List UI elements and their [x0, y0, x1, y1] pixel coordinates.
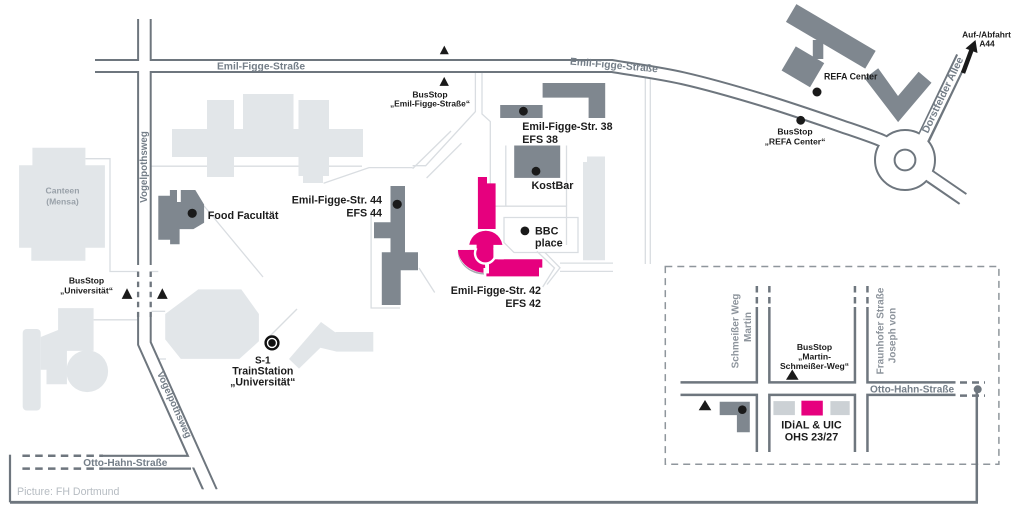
svg-text:Emil-Figge-Str. 44: Emil-Figge-Str. 44: [292, 195, 382, 207]
svg-text:„Universität“: „Universität“: [60, 286, 113, 296]
svg-text:REFA Center: REFA Center: [824, 72, 878, 82]
svg-text:Emil-Figge-Str. 38: Emil-Figge-Str. 38: [522, 121, 612, 133]
svg-text:A44: A44: [979, 39, 995, 49]
svg-text:BBC: BBC: [535, 226, 559, 238]
svg-text:EFS 42: EFS 42: [505, 298, 541, 310]
svg-text:BusStop: BusStop: [69, 276, 104, 286]
svg-text:BusStop: BusStop: [777, 127, 812, 137]
svg-text:Otto-Hahn-Straße: Otto-Hahn-Straße: [83, 458, 167, 469]
svg-text:Emil-Figge-Str. 42: Emil-Figge-Str. 42: [451, 285, 541, 297]
svg-text:Picture: FH Dortmund: Picture: FH Dortmund: [17, 486, 120, 498]
svg-text:Food Facultät: Food Facultät: [208, 210, 279, 222]
svg-text:KostBar: KostBar: [532, 180, 575, 192]
svg-text:OHS 23/27: OHS 23/27: [785, 432, 838, 444]
svg-text:(Mensa): (Mensa): [46, 197, 79, 207]
svg-text:Emil-Figge-Straße: Emil-Figge-Straße: [217, 62, 305, 73]
svg-text:Vogelpothsweg: Vogelpothsweg: [139, 131, 150, 203]
svg-text:Joseph von: Joseph von: [888, 308, 899, 364]
svg-text:„Universität“: „Universität“: [230, 377, 295, 389]
svg-text:EFS 38: EFS 38: [522, 134, 558, 146]
svg-text:Schmeißer-Weg“: Schmeißer-Weg“: [780, 361, 849, 371]
svg-text:IDiAL & UIC: IDiAL & UIC: [781, 420, 842, 432]
svg-text:„REFA Center“: „REFA Center“: [765, 137, 826, 147]
svg-text:place: place: [535, 238, 563, 250]
svg-text:Schmeißer Weg: Schmeißer Weg: [731, 294, 742, 369]
svg-text:Fraunhofer Straße: Fraunhofer Straße: [876, 287, 887, 374]
svg-text:Martin: Martin: [743, 312, 754, 342]
svg-text:„Emil-Figge-Straße“: „Emil-Figge-Straße“: [390, 99, 470, 109]
svg-text:EFS 44: EFS 44: [346, 208, 382, 220]
svg-text:BusStop: BusStop: [797, 342, 832, 352]
svg-text:„Martin-: „Martin-: [798, 352, 831, 362]
svg-text:Canteen: Canteen: [46, 186, 80, 196]
svg-text:Otto-Hahn-Straße: Otto-Hahn-Straße: [870, 385, 954, 396]
